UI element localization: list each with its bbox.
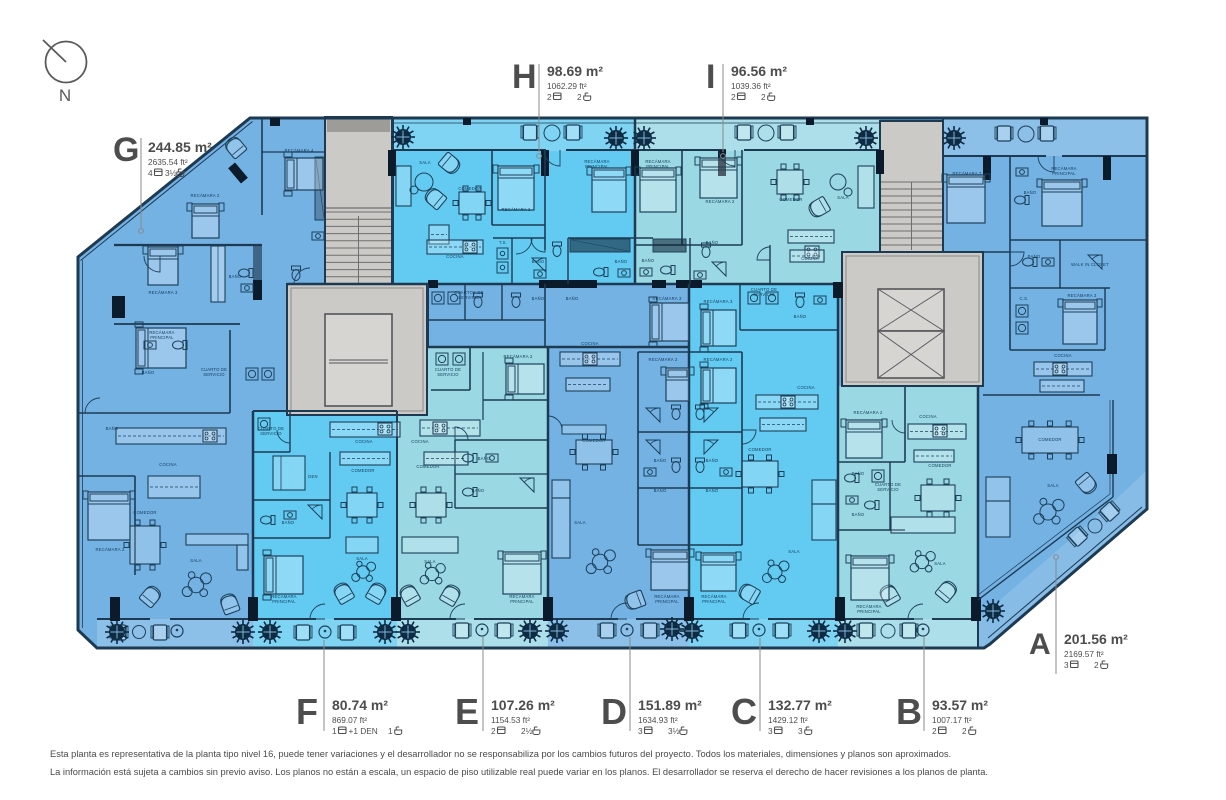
- svg-text:PRINCIPAL: PRINCIPAL: [585, 164, 609, 169]
- svg-text:3: 3: [1064, 660, 1069, 670]
- svg-text:RECÁMARA 2: RECÁMARA 2: [504, 354, 533, 359]
- svg-text:SERVICIO: SERVICIO: [877, 487, 899, 492]
- svg-text:E: E: [455, 691, 479, 732]
- svg-text:F: F: [296, 691, 318, 732]
- svg-text:SALA: SALA: [190, 558, 202, 563]
- svg-text:1634.93 ft²: 1634.93 ft²: [638, 715, 678, 725]
- svg-text:3½: 3½: [668, 726, 680, 736]
- svg-text:COCINA: COCINA: [581, 341, 599, 346]
- svg-text:BAÑO: BAÑO: [642, 258, 655, 263]
- svg-text:RECÁMARA 2: RECÁMARA 2: [96, 547, 125, 552]
- svg-text:COMEDOR: COMEDOR: [779, 197, 802, 202]
- svg-text:COMEDOR: COMEDOR: [748, 447, 771, 452]
- svg-text:BAÑO: BAÑO: [532, 259, 545, 264]
- svg-text:PRINCIPAL: PRINCIPAL: [702, 599, 726, 604]
- svg-text:PRINCIPAL: PRINCIPAL: [646, 164, 670, 169]
- svg-text:COCINA: COCINA: [801, 256, 819, 261]
- svg-text:132.77 m²: 132.77 m²: [768, 697, 832, 713]
- svg-text:PRINCIPAL: PRINCIPAL: [150, 335, 174, 340]
- svg-text:RECÁMARA 3: RECÁMARA 3: [149, 290, 178, 295]
- svg-text:80.74 m²: 80.74 m²: [332, 697, 388, 713]
- svg-text:201.56 m²: 201.56 m²: [1064, 631, 1128, 647]
- svg-text:PRINCIPAL: PRINCIPAL: [272, 599, 296, 604]
- svg-text:BAÑO: BAÑO: [282, 520, 295, 525]
- svg-text:COCINA: COCINA: [446, 254, 464, 259]
- svg-text:BAÑO: BAÑO: [615, 259, 628, 264]
- svg-text:BAÑO: BAÑO: [654, 488, 667, 493]
- svg-text:RECÁMARA 3: RECÁMARA 3: [704, 299, 733, 304]
- svg-text:SERVICIO: SERVICIO: [437, 372, 459, 377]
- svg-text:BAÑO: BAÑO: [142, 370, 155, 375]
- svg-text:COCINA: COCINA: [159, 462, 177, 467]
- svg-text:2169.57 ft²: 2169.57 ft²: [1064, 649, 1104, 659]
- svg-text:+1 DEN: +1 DEN: [349, 726, 378, 736]
- svg-text:SERVICIO: SERVICIO: [458, 295, 480, 300]
- svg-text:2: 2: [962, 726, 967, 736]
- svg-text:SALA: SALA: [788, 549, 800, 554]
- svg-text:La información está sujeta a c: La información está sujeta a cambios sin…: [50, 767, 988, 777]
- svg-text:BAÑO: BAÑO: [106, 426, 119, 431]
- svg-text:SALA: SALA: [424, 559, 436, 564]
- svg-text:RECÁMARA 2: RECÁMARA 2: [706, 199, 735, 204]
- svg-text:BAÑO: BAÑO: [532, 296, 545, 301]
- svg-text:RECÁMARA 3: RECÁMARA 3: [1068, 293, 1097, 298]
- svg-text:RECÁMARA 2: RECÁMARA 2: [502, 207, 531, 212]
- svg-text:COMEDOR: COMEDOR: [582, 438, 605, 443]
- svg-text:1154.53 ft²: 1154.53 ft²: [491, 715, 530, 725]
- svg-text:3½: 3½: [165, 168, 177, 178]
- svg-text:BAÑO: BAÑO: [706, 240, 719, 245]
- svg-text:2: 2: [547, 92, 552, 102]
- svg-text:BAÑO: BAÑO: [1028, 254, 1041, 259]
- svg-text:SALA: SALA: [837, 195, 849, 200]
- svg-text:SERVICIO: SERVICIO: [753, 292, 775, 297]
- svg-text:RECÁMARA 2: RECÁMARA 2: [953, 171, 982, 176]
- svg-text:2½: 2½: [521, 726, 533, 736]
- svg-text:COCINA: COCINA: [797, 385, 815, 390]
- svg-text:869.07 ft²: 869.07 ft²: [332, 715, 367, 725]
- svg-text:COCINA: COCINA: [355, 439, 373, 444]
- svg-text:1: 1: [332, 726, 337, 736]
- svg-text:PRINCIPAL: PRINCIPAL: [510, 599, 534, 604]
- svg-text:COCINA: COCINA: [411, 439, 429, 444]
- svg-text:2635.54 ft²: 2635.54 ft²: [148, 157, 188, 167]
- svg-text:PRINCIPAL: PRINCIPAL: [1052, 171, 1076, 176]
- svg-text:BAÑO: BAÑO: [1024, 190, 1037, 195]
- svg-text:107.26 m²: 107.26 m²: [491, 697, 555, 713]
- svg-text:C.S.: C.S.: [1020, 296, 1029, 301]
- svg-text:2: 2: [932, 726, 937, 736]
- svg-text:1007.17 ft²: 1007.17 ft²: [932, 715, 972, 725]
- svg-text:DEN: DEN: [308, 474, 317, 479]
- svg-text:SALA: SALA: [1047, 483, 1059, 488]
- svg-text:A: A: [1029, 628, 1051, 661]
- svg-text:SERVICIO: SERVICIO: [260, 431, 282, 436]
- svg-text:COCINA: COCINA: [1054, 353, 1072, 358]
- svg-text:4: 4: [148, 168, 153, 178]
- svg-text:WALK IN CLOSET: WALK IN CLOSET: [1071, 262, 1109, 267]
- svg-text:BAÑO: BAÑO: [229, 274, 242, 279]
- svg-text:RECÁMARA 2: RECÁMARA 2: [854, 410, 883, 415]
- svg-text:SALA: SALA: [934, 561, 946, 566]
- svg-text:SALA: SALA: [419, 160, 431, 165]
- svg-text:1429.12 ft²: 1429.12 ft²: [768, 715, 808, 725]
- svg-text:Esta planta es representativa: Esta planta es representativa de la plan…: [50, 749, 951, 759]
- svg-text:2: 2: [761, 92, 766, 102]
- svg-text:SERVICIO: SERVICIO: [203, 372, 225, 377]
- svg-text:C: C: [731, 691, 757, 732]
- svg-text:T.S.: T.S.: [499, 240, 507, 245]
- svg-text:BAÑO: BAÑO: [794, 314, 807, 319]
- svg-text:I: I: [706, 58, 715, 96]
- svg-text:1062.29 ft²: 1062.29 ft²: [547, 81, 587, 91]
- svg-text:BAÑO: BAÑO: [566, 296, 579, 301]
- svg-text:3: 3: [768, 726, 773, 736]
- svg-text:2: 2: [731, 92, 736, 102]
- svg-text:2: 2: [1094, 660, 1099, 670]
- svg-text:COMEDOR: COMEDOR: [351, 468, 374, 473]
- svg-text:151.89 m²: 151.89 m²: [638, 697, 702, 713]
- svg-text:BAÑO: BAÑO: [654, 458, 667, 463]
- svg-text:96.56 m²: 96.56 m²: [731, 63, 787, 79]
- svg-text:2: 2: [577, 92, 582, 102]
- svg-text:COCINA: COCINA: [919, 414, 937, 419]
- svg-text:H: H: [512, 58, 537, 96]
- svg-text:N: N: [59, 86, 71, 105]
- svg-text:G: G: [113, 131, 139, 169]
- svg-text:PRINCIPAL: PRINCIPAL: [857, 609, 881, 614]
- svg-text:SALA: SALA: [574, 520, 586, 525]
- svg-text:RECÁMARA 2: RECÁMARA 2: [191, 193, 220, 198]
- svg-text:3: 3: [638, 726, 643, 736]
- svg-text:BAÑO: BAÑO: [852, 471, 865, 476]
- svg-text:PRINCIPAL: PRINCIPAL: [655, 599, 679, 604]
- svg-text:B: B: [896, 691, 922, 732]
- svg-text:2: 2: [491, 726, 496, 736]
- svg-text:RECÁMARA 4: RECÁMARA 4: [285, 148, 314, 153]
- svg-text:RECÁMARA 2: RECÁMARA 2: [649, 357, 678, 362]
- svg-text:SALA: SALA: [356, 556, 368, 561]
- svg-text:BAÑO: BAÑO: [706, 488, 719, 493]
- svg-text:3: 3: [798, 726, 803, 736]
- svg-text:1039.36 ft²: 1039.36 ft²: [731, 81, 771, 91]
- svg-text:COMEDOR: COMEDOR: [928, 463, 951, 468]
- svg-text:BAÑO: BAÑO: [706, 458, 719, 463]
- svg-text:RECÁMARA 2: RECÁMARA 2: [704, 357, 733, 362]
- svg-text:93.57 m²: 93.57 m²: [932, 697, 988, 713]
- svg-text:COMEDOR: COMEDOR: [1038, 437, 1061, 442]
- svg-text:D: D: [601, 691, 627, 732]
- svg-text:BAÑO: BAÑO: [478, 456, 491, 461]
- svg-text:BAÑO: BAÑO: [852, 512, 865, 517]
- svg-text:COMEDOR: COMEDOR: [133, 510, 156, 515]
- svg-text:98.69 m²: 98.69 m²: [547, 63, 603, 79]
- svg-text:BAÑO: BAÑO: [472, 488, 485, 493]
- svg-text:COMEDOR: COMEDOR: [416, 464, 439, 469]
- svg-text:RECÁMARA 3: RECÁMARA 3: [653, 296, 682, 301]
- svg-text:244.85 m²: 244.85 m²: [148, 139, 212, 155]
- svg-text:1: 1: [388, 726, 393, 736]
- svg-text:COMEDOR: COMEDOR: [458, 186, 481, 191]
